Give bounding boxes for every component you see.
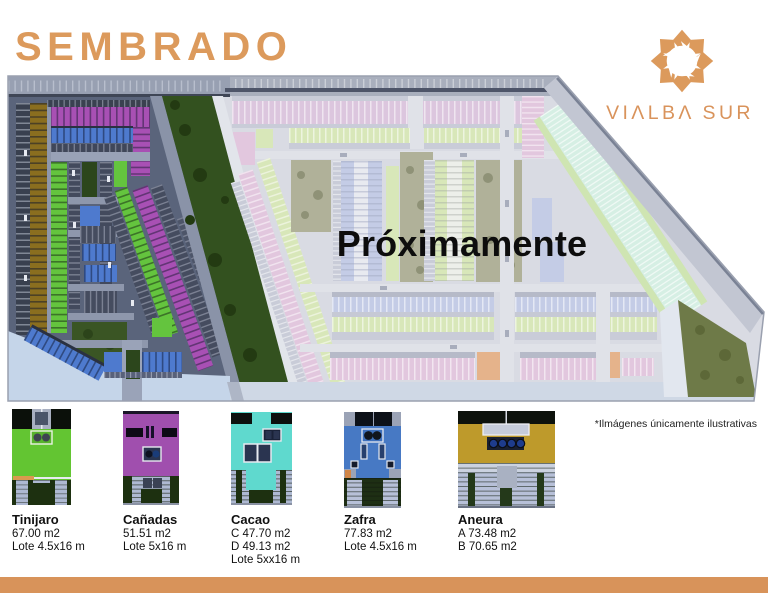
svg-text:Cañadas: Cañadas [123,512,177,527]
svg-text:VIΛLBΛ SUR: VIΛLBΛ SUR [606,102,754,124]
svg-text:77.83 m2: 77.83 m2 [344,528,392,540]
svg-text:C 47.70 m2: C 47.70 m2 [231,528,290,540]
svg-text:Tinijaro: Tinijaro [12,512,59,527]
svg-text:Próximamente: Próximamente [337,223,588,264]
svg-text:Lote 4.5x16 m: Lote 4.5x16 m [344,541,417,553]
svg-text:Zafra: Zafra [344,512,377,527]
svg-text:A 73.48 m2: A 73.48 m2 [458,528,516,540]
svg-text:67.00 m2: 67.00 m2 [12,528,60,540]
svg-text:Cacao: Cacao [231,512,270,527]
svg-text:Lote 5x16 m: Lote 5x16 m [123,541,186,553]
svg-text:SEMBRADO: SEMBRADO [15,25,292,69]
svg-text:Aneura: Aneura [458,512,504,527]
svg-text:Lote 4.5x16 m: Lote 4.5x16 m [12,541,85,553]
svg-text:51.51 m2: 51.51 m2 [123,528,171,540]
svg-text:B 70.65 m2: B 70.65 m2 [458,541,517,553]
svg-text:D 49.13 m2: D 49.13 m2 [231,541,290,553]
svg-text:Lote 5xx16 m: Lote 5xx16 m [231,554,300,566]
svg-text:*Ilmágenes únicamente ilustrat: *Ilmágenes únicamente ilustrativas [595,418,757,430]
